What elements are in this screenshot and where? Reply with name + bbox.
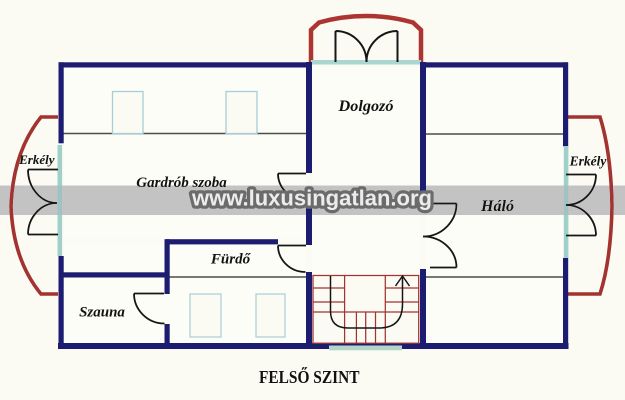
svg-text:FELSŐ SZINT: FELSŐ SZINT — [259, 367, 360, 387]
svg-text:Erkély: Erkély — [569, 154, 608, 169]
svg-text:Szauna: Szauna — [79, 305, 125, 321]
svg-text:Dolgozó: Dolgozó — [337, 98, 393, 115]
svg-text:www.luxusingatlan.org: www.luxusingatlan.org — [191, 186, 432, 211]
svg-text:Fürdő: Fürdő — [210, 252, 252, 268]
svg-text:Erkély: Erkély — [18, 152, 55, 167]
